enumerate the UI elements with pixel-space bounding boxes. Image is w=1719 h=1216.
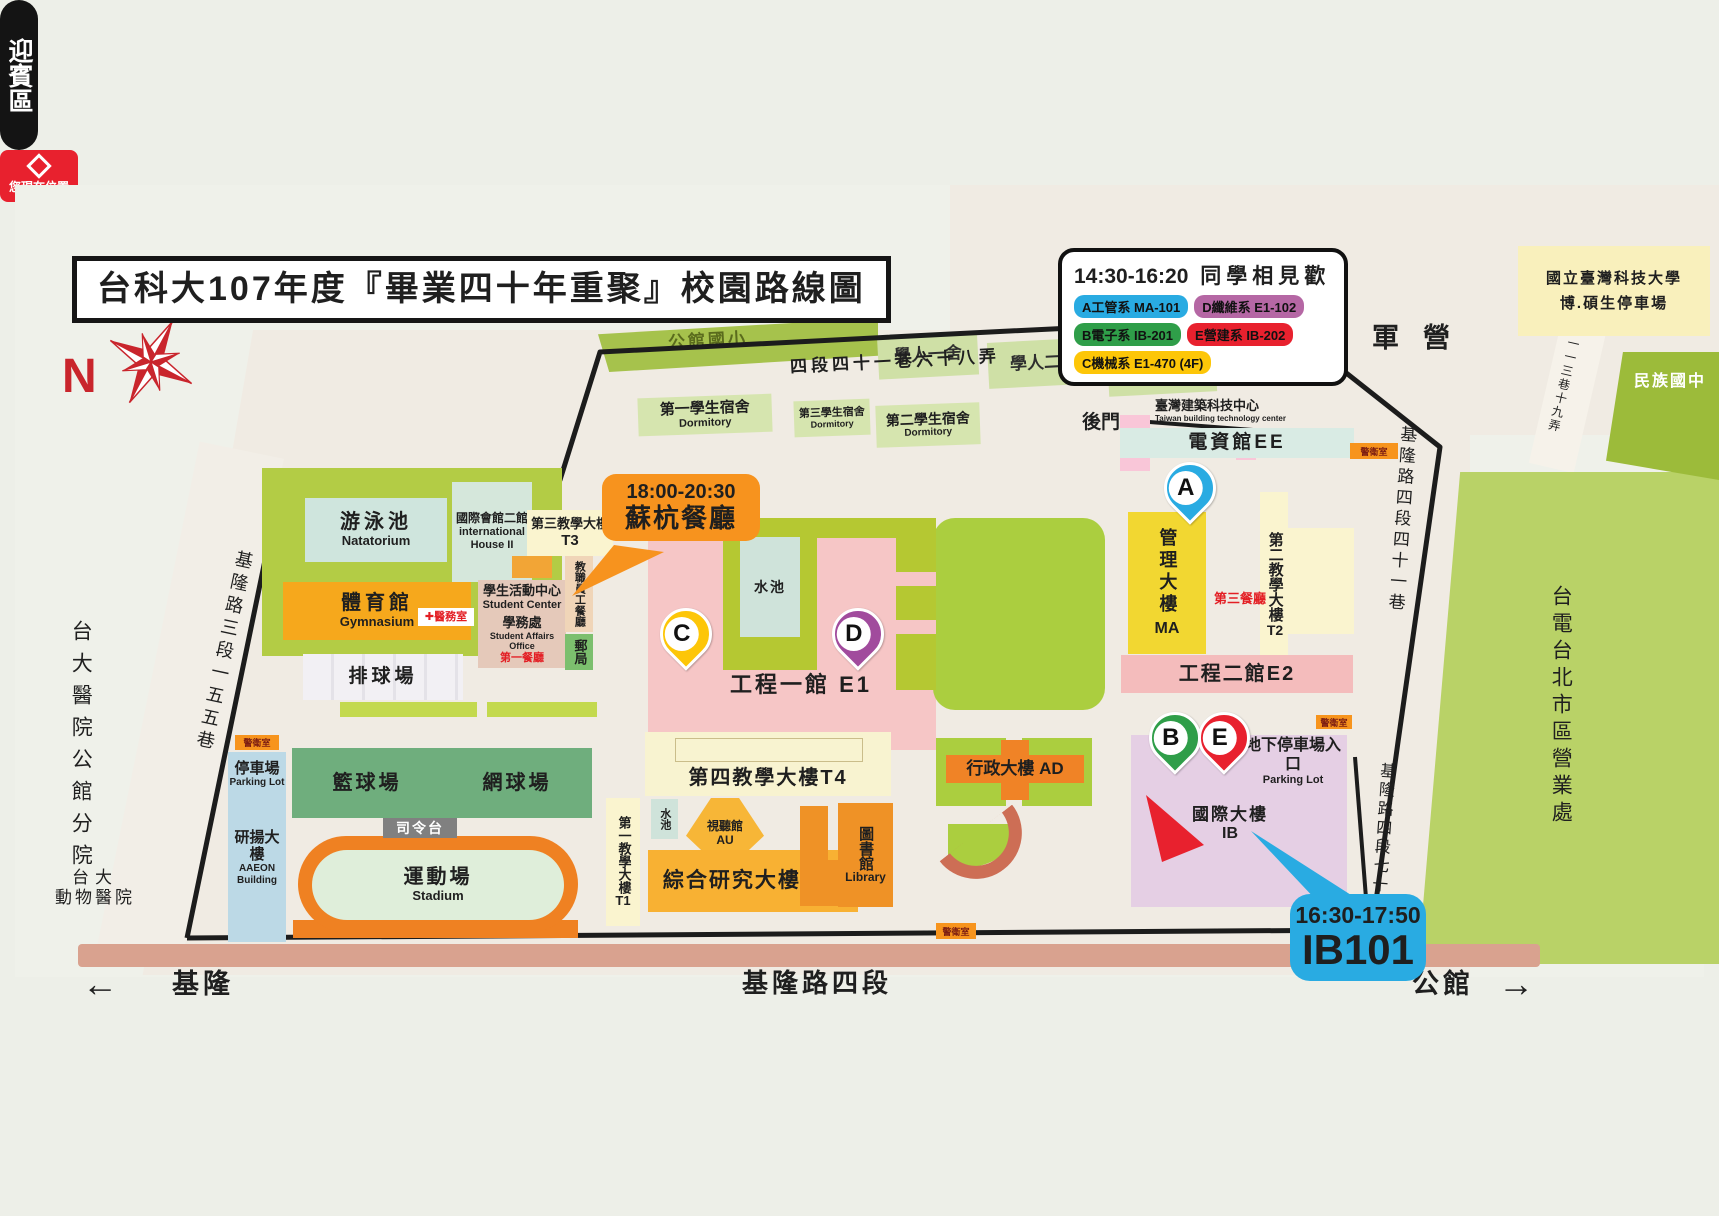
t3-en: T3 bbox=[561, 532, 579, 549]
ib-en: IB bbox=[1222, 825, 1238, 843]
cafeteria3-label: 第三餐廳 bbox=[1214, 591, 1266, 607]
marker-d-letter: D bbox=[837, 617, 871, 651]
podium: 司令台 bbox=[383, 818, 457, 838]
campus-map: 公館國小 學人一舍 學人二舍 學人 四段四十一巷六十八弄 軍營 國立臺灣科技大學… bbox=[0, 0, 1719, 1216]
basketball-label: 籃球場 bbox=[333, 772, 402, 795]
ad-building: 行政大樓 AD bbox=[946, 755, 1084, 783]
student-affairs-en: Student Affairs Office bbox=[478, 631, 566, 652]
vet-line1: 台大 bbox=[72, 868, 118, 888]
parking-west-zh: 停車場 bbox=[234, 760, 279, 777]
ug-parking-zh: 地下停車場入口 bbox=[1238, 737, 1348, 774]
cafeteria1-label: 第一餐廳 bbox=[500, 652, 544, 665]
ih2-en1: international bbox=[459, 526, 525, 539]
bottom-road-label: 基隆路四段 bbox=[742, 968, 892, 999]
dorm-2-zh: 第二學生宿舍 bbox=[886, 410, 971, 429]
t2-block bbox=[1288, 528, 1354, 634]
library-building: 圖書館 Library bbox=[838, 803, 893, 907]
minzu-label: 民族國中 bbox=[1634, 372, 1706, 391]
legend-heading: 14:30-16:20 同學相見歡 bbox=[1074, 260, 1334, 290]
tennis-label: 網球場 bbox=[483, 772, 552, 795]
au-en: AU bbox=[716, 834, 733, 848]
marker-b-letter: B bbox=[1154, 721, 1188, 755]
dinner-time: 18:00-20:30 bbox=[627, 481, 736, 504]
student-center-zh: 學生活動中心 bbox=[483, 584, 561, 599]
vet-line2: 動物醫院 bbox=[55, 888, 135, 908]
dorm-3-zh: 第三學生宿舍 bbox=[799, 405, 865, 420]
gym-en: Gymnasium bbox=[340, 615, 414, 630]
e1-pool: 水池 bbox=[740, 537, 800, 637]
student-center-en: Student Center bbox=[483, 599, 562, 612]
stadium-zh: 運動場 bbox=[404, 866, 473, 889]
orange-box-small bbox=[512, 556, 552, 578]
taipower-label: 台電台北市區營業處 bbox=[1548, 585, 1573, 828]
ad-label: 行政大樓 AD bbox=[966, 759, 1063, 779]
ee-label: 電資館EE bbox=[1188, 432, 1285, 454]
aaeon-en2: Building bbox=[237, 875, 277, 887]
parking-aaeon-column: 停車場 Parking Lot 研揚大樓 AAEON Building bbox=[228, 752, 286, 942]
army-label: 軍營 bbox=[1372, 322, 1474, 354]
ma-building: 管理大樓 MA bbox=[1128, 512, 1206, 654]
e1-olive-right-gap1 bbox=[896, 572, 936, 586]
ug-parking-label: 地下停車場入口 Parking Lot bbox=[1238, 742, 1348, 782]
guard-box-west: 警衛室 bbox=[235, 735, 279, 750]
ib-label-box: 國際大樓 IB bbox=[1180, 800, 1280, 848]
vet-hospital-label: 台大 動物醫院 bbox=[40, 868, 150, 907]
legend-pill-d: D纖維系 E1-102 bbox=[1194, 295, 1304, 318]
gym-zh: 體育館 bbox=[341, 592, 413, 615]
e1-olive-right-gap2 bbox=[896, 620, 936, 634]
e1-pool-label: 水池 bbox=[754, 579, 786, 595]
dorm-3: 第三學生宿舍 Dormitory bbox=[793, 399, 870, 438]
green-bar-1 bbox=[340, 702, 477, 717]
natatorium: 游泳池 Natatorium bbox=[305, 498, 447, 562]
natatorium-zh: 游泳池 bbox=[340, 511, 412, 534]
ee-building: 電資館EE bbox=[1120, 428, 1354, 458]
legend-box: 14:30-16:20 同學相見歡 A工管系 MA-101 D纖維系 E1-10… bbox=[1058, 248, 1348, 386]
marker-e-letter: E bbox=[1203, 721, 1237, 755]
t3-building: 第三教學大樓 T3 bbox=[527, 510, 613, 556]
legend-time: 14:30-16:20 bbox=[1074, 265, 1188, 288]
e2-label: 工程二館E2 bbox=[1179, 663, 1295, 686]
back-gate-label: 後門 bbox=[1082, 412, 1120, 435]
t4-inner-outline bbox=[675, 738, 863, 762]
student-affairs-zh: 學務處 bbox=[502, 616, 541, 631]
legend-pill-e: E營建系 IB-202 bbox=[1187, 323, 1293, 346]
aaeon-zh: 研揚大樓 bbox=[228, 829, 286, 864]
legend-heading-text: 同學相見歡 bbox=[1200, 265, 1330, 288]
ib101-room: IB101 bbox=[1302, 928, 1414, 972]
clinic: ✚醫務室 bbox=[418, 608, 474, 626]
t1-zh: 第一教學大樓 bbox=[616, 816, 631, 894]
page-title: 台科大107年度『畢業四十年重聚』校園路線圖 bbox=[72, 256, 891, 323]
student-center: 學生活動中心 Student Center 學務處 Student Affair… bbox=[478, 580, 566, 668]
ih2-zh: 國際會館二館 bbox=[456, 512, 528, 526]
dinner-name: 蘇杭餐廳 bbox=[625, 504, 737, 534]
legend-pill-b: B電子系 IB-201 bbox=[1074, 323, 1181, 346]
t3-zh: 第三教學大樓 bbox=[531, 517, 609, 532]
grad-parking-line2: 博.碩生停車場 bbox=[1560, 295, 1668, 312]
staff-restaurant: 教職員工餐廳 bbox=[565, 556, 593, 632]
podium-label: 司令台 bbox=[396, 820, 444, 836]
dinner-callout[interactable]: 18:00-20:30 蘇杭餐廳 bbox=[602, 474, 760, 541]
dorm-1-zh: 第一學生宿舍 bbox=[659, 398, 750, 418]
staff-restaurant-label: 教職員工餐廳 bbox=[573, 561, 586, 627]
dorm-1: 第一學生宿舍 Dormitory bbox=[637, 394, 772, 437]
au-zh: 視聽館 bbox=[707, 820, 743, 834]
t1-en: T1 bbox=[615, 894, 630, 909]
parking-west-en: Parking Lot bbox=[229, 777, 284, 789]
grad-parking: 國立臺灣科技大學 博.碩生停車場 bbox=[1518, 246, 1710, 336]
ib101-callout[interactable]: 16:30-17:50 IB101 bbox=[1290, 894, 1426, 981]
dorm-2-en: Dormitory bbox=[904, 426, 952, 439]
post-office: 郵局 bbox=[565, 634, 593, 670]
t1-building: 第一教學大樓 T1 bbox=[606, 798, 640, 926]
volleyball-court: 排球場 bbox=[303, 654, 463, 700]
guard-box-east: 警衛室 bbox=[1316, 715, 1352, 729]
t4-label: 第四教學大樓T4 bbox=[688, 767, 847, 790]
dorm-2: 第二學生宿舍 Dormitory bbox=[875, 402, 980, 448]
aaeon-en1: AAEON bbox=[239, 863, 275, 875]
guard-box-topright: 警衛室 bbox=[1350, 443, 1398, 459]
marker-a-letter: A bbox=[1169, 471, 1203, 505]
e1-label: 工程一館 E1 bbox=[730, 672, 872, 698]
ib101-time: 16:30-17:50 bbox=[1295, 902, 1420, 928]
grad-parking-line1: 國立臺灣科技大學 bbox=[1546, 270, 1682, 287]
compass-n-label: N bbox=[62, 348, 97, 406]
ma-zh: 管理大樓 bbox=[1157, 528, 1178, 616]
central-lawn bbox=[933, 518, 1105, 710]
volleyball-label: 排球場 bbox=[348, 666, 417, 688]
tbtc-zh: 臺灣建築科技中心 bbox=[1155, 399, 1259, 414]
natatorium-en: Natatorium bbox=[342, 534, 411, 549]
library-en: Library bbox=[845, 871, 886, 885]
guard-box-bottom: 警衛室 bbox=[936, 923, 976, 939]
ug-parking-en: Parking Lot bbox=[1263, 774, 1324, 787]
welcome-area-label: 迎賓區 bbox=[1, 38, 37, 113]
diamond-icon bbox=[26, 153, 51, 178]
marker-c-letter: C bbox=[665, 617, 699, 651]
small-pool-label: 水池 bbox=[658, 808, 671, 830]
stadium-field: 運動場 Stadium bbox=[312, 850, 564, 920]
ih2-en2: House II bbox=[471, 539, 514, 552]
legend-pill-c: C機械系 E1-470 (4F) bbox=[1074, 351, 1211, 374]
e2-building: 工程二館E2 bbox=[1121, 655, 1353, 693]
t2-en: T2 bbox=[1267, 622, 1283, 638]
library-zh: 圖書館 bbox=[857, 826, 874, 871]
t2-zh: 第二教學大樓 bbox=[1266, 532, 1283, 622]
tbtc: 臺灣建築科技中心 Taiwan building technology cent… bbox=[1155, 394, 1345, 428]
ma-en: MA bbox=[1155, 620, 1180, 638]
tbtc-en: Taiwan building technology center bbox=[1155, 414, 1286, 423]
dorm-1-en: Dormitory bbox=[679, 416, 732, 430]
stadium-en: Stadium bbox=[412, 889, 463, 904]
east-arrow: → bbox=[1498, 962, 1534, 1005]
west-arrow: ← bbox=[82, 962, 118, 1005]
dorm-3-en: Dormitory bbox=[811, 418, 854, 430]
green-bar-2 bbox=[487, 702, 597, 717]
clinic-label: ✚醫務室 bbox=[425, 611, 467, 624]
welcome-area-sign: 迎賓區 bbox=[0, 0, 38, 150]
hospital-label: 台大醫院公館分院 bbox=[68, 620, 93, 876]
ib-zh: 國際大樓 bbox=[1192, 805, 1268, 825]
courts-band: 籃球場 網球場 bbox=[292, 748, 592, 818]
west-dir-label: 基隆 bbox=[172, 968, 234, 1000]
t2-label-box: 第二教學大樓 T2 bbox=[1258, 510, 1292, 660]
e1-olive-right bbox=[896, 538, 936, 690]
legend-pill-a: A工管系 MA-101 bbox=[1074, 295, 1188, 318]
small-pool: 水池 bbox=[651, 799, 678, 839]
post-office-label: 郵局 bbox=[572, 639, 587, 665]
gongguan-elementary-label: 公館國小 bbox=[668, 329, 749, 353]
